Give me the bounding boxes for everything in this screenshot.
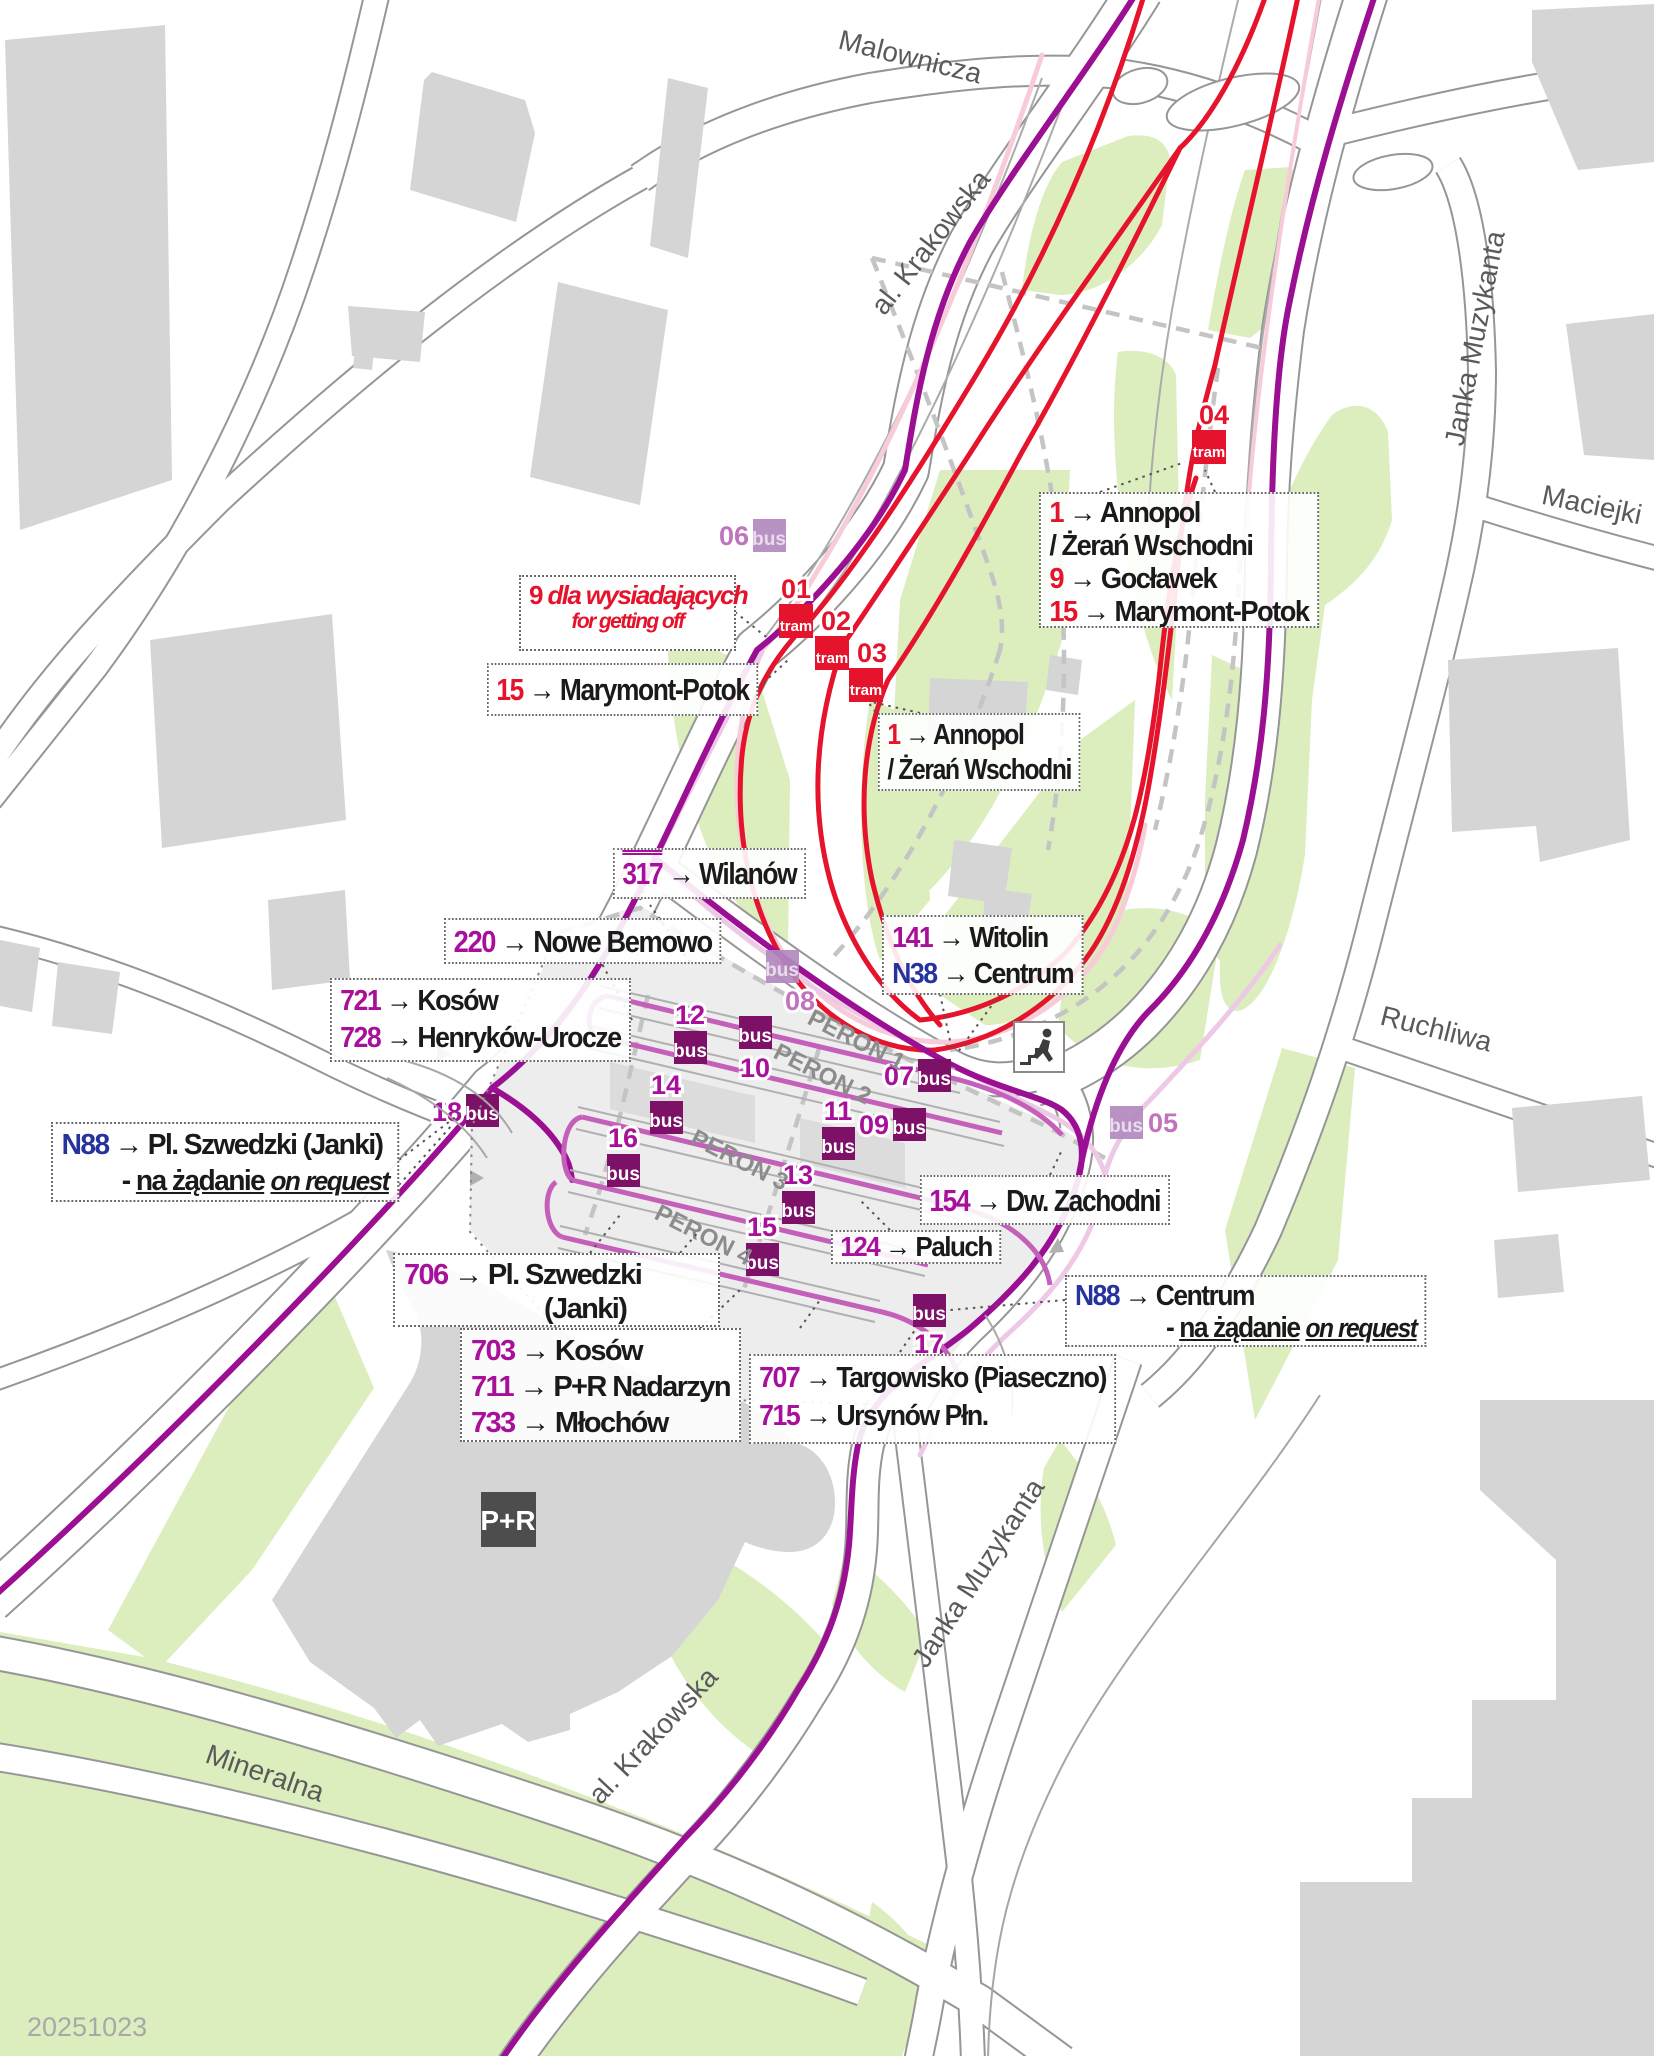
svg-text:12: 12 xyxy=(675,1000,705,1030)
svg-text:bus: bus xyxy=(673,1041,707,1062)
svg-text:tram: tram xyxy=(850,682,883,699)
svg-text:05: 05 xyxy=(1148,1108,1178,1138)
svg-text:bus: bus xyxy=(892,1118,926,1139)
svg-text:06: 06 xyxy=(719,521,749,551)
svg-text:tram: tram xyxy=(816,650,849,667)
svg-text:bus: bus xyxy=(1109,1116,1143,1137)
svg-text:bus: bus xyxy=(765,960,799,981)
svg-text:08: 08 xyxy=(785,986,815,1016)
svg-text:bus: bus xyxy=(465,1104,499,1125)
svg-text:bus: bus xyxy=(649,1111,683,1132)
svg-text:bus: bus xyxy=(821,1137,855,1158)
svg-text:10: 10 xyxy=(740,1053,770,1083)
svg-text:bus: bus xyxy=(606,1164,640,1185)
svg-text:09: 09 xyxy=(859,1110,889,1140)
svg-text:P+R: P+R xyxy=(480,1505,535,1536)
svg-text:tram: tram xyxy=(780,618,813,635)
svg-text:04: 04 xyxy=(1199,400,1229,430)
svg-text:01: 01 xyxy=(781,574,811,604)
svg-text:03: 03 xyxy=(857,638,887,668)
svg-text:bus: bus xyxy=(752,529,786,550)
svg-text:bus: bus xyxy=(738,1026,772,1047)
svg-text:16: 16 xyxy=(608,1123,638,1153)
svg-text:bus: bus xyxy=(917,1069,951,1090)
svg-text:tram: tram xyxy=(1193,444,1226,461)
svg-text:02: 02 xyxy=(821,606,851,636)
svg-text:bus: bus xyxy=(781,1201,815,1222)
svg-text:14: 14 xyxy=(651,1070,681,1100)
svg-text:20251023: 20251023 xyxy=(27,2012,147,2042)
svg-text:bus: bus xyxy=(912,1304,946,1325)
svg-text:15: 15 xyxy=(747,1212,777,1242)
